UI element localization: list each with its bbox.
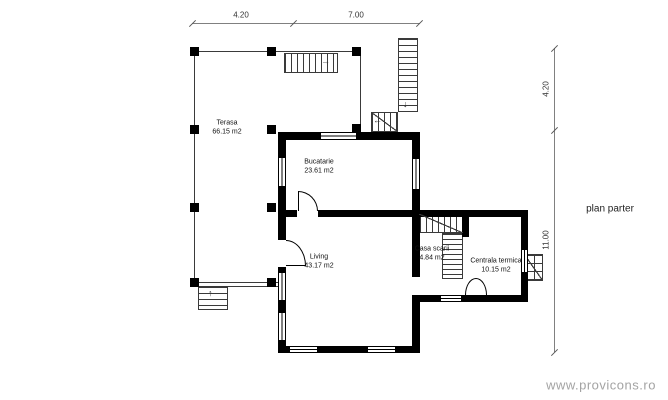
window	[289, 346, 318, 353]
down-arrow-icon: ↓	[403, 100, 408, 109]
column	[352, 47, 361, 56]
room-area: 23.61 m2	[304, 167, 334, 176]
column	[190, 47, 199, 56]
wall-annex-bottom	[412, 295, 528, 302]
room-name: Centrala termica	[470, 257, 521, 266]
column	[352, 124, 361, 133]
dimension-tick	[416, 20, 423, 27]
door-swing-living	[286, 240, 306, 266]
room-label-centrala: Centrala termica 10.15 m2	[470, 257, 521, 275]
room-area: 4.84 m2	[415, 254, 450, 263]
dimension-top-right: 7.00	[348, 11, 364, 20]
room-name: Living	[304, 253, 333, 262]
room-name: Terasa	[212, 119, 241, 128]
door-opening-kitchen	[297, 210, 318, 217]
window	[440, 295, 462, 302]
dimension-right-lower: 11.00	[542, 230, 551, 249]
door-swing-kitchen	[298, 191, 318, 211]
dimension-line-top	[192, 23, 420, 24]
room-area: 43.17 m2	[304, 262, 333, 271]
stairs-exterior-flight	[398, 38, 418, 112]
window	[278, 312, 286, 341]
room-name: Casa scarii	[415, 245, 450, 254]
window	[412, 158, 420, 190]
column	[190, 278, 199, 287]
column	[190, 203, 199, 212]
up-arrow-icon: ↑	[208, 289, 213, 298]
stair-diagonal	[419, 214, 463, 233]
terrace-edge-left	[194, 51, 195, 287]
room-name: Bucatarie	[304, 158, 334, 167]
dimension-line-right	[554, 48, 555, 352]
window	[367, 346, 396, 353]
floor-plan-canvas: 4.20 7.00 4.20 11.00	[0, 0, 668, 400]
window	[278, 272, 286, 301]
plan-title: plan parter	[586, 204, 634, 215]
room-area: 66.15 m2	[212, 128, 241, 137]
dimension-top-left: 4.20	[233, 11, 249, 20]
room-label-casa-scarii: Casa scarii 4.84 m2	[415, 245, 450, 263]
room-label-living: Living 43.17 m2	[304, 253, 333, 271]
room-label-terasa: Terasa 66.15 m2	[212, 119, 241, 137]
column	[267, 47, 276, 56]
watermark-text: www.provicons.ro	[546, 378, 656, 393]
right-arrow-icon: →	[321, 57, 330, 66]
door-opening-stairhall	[412, 277, 420, 295]
column	[267, 125, 276, 134]
window	[320, 132, 357, 140]
door-swing-centrala	[465, 278, 487, 295]
window	[521, 249, 528, 273]
room-area: 10.15 m2	[470, 266, 521, 275]
dimension-tick	[551, 349, 558, 356]
column	[267, 278, 276, 287]
left-arrow-icon: ←	[373, 116, 382, 125]
door-opening-living	[278, 240, 286, 267]
terrace-edge-right	[360, 51, 361, 132]
room-label-bucatarie: Bucatarie 23.61 m2	[304, 158, 334, 176]
terrace-entry-steps	[198, 286, 228, 310]
column	[190, 125, 199, 134]
column	[267, 203, 276, 212]
terrace-edge-top	[194, 51, 361, 52]
wall-stub-stairhall	[462, 217, 469, 237]
dimension-right-upper: 4.20	[542, 81, 551, 97]
window	[278, 157, 286, 187]
